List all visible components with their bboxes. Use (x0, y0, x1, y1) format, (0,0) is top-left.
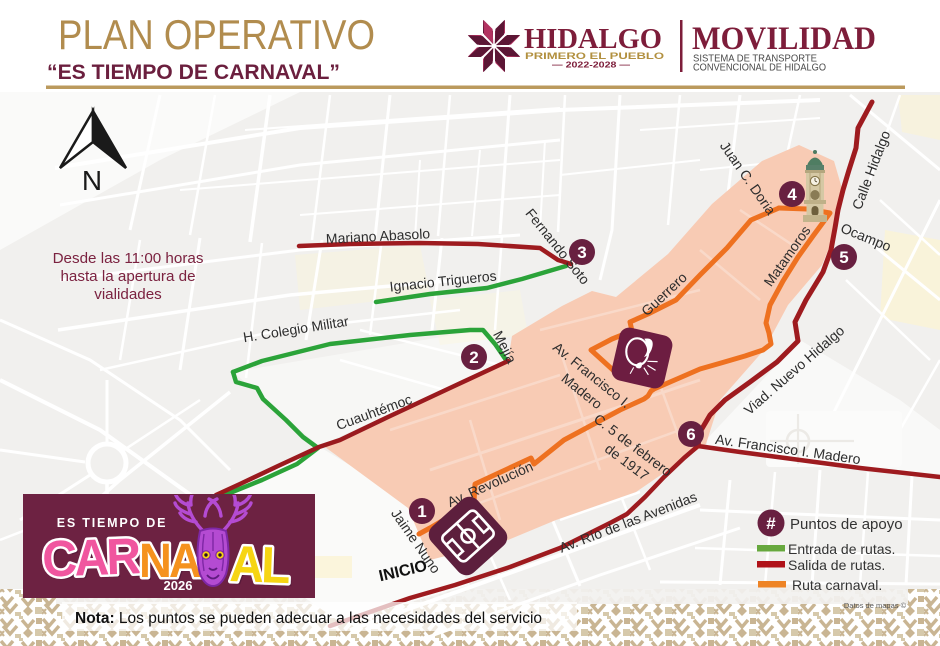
svg-text:Desde las 11:00 horas: Desde las 11:00 horas (53, 250, 204, 267)
svg-text:2026: 2026 (164, 578, 193, 593)
svg-text:Nota: Los puntos se pueden ade: Nota: Los puntos se pueden adecuar a las… (75, 610, 542, 627)
svg-text:Salida de rutas.: Salida de rutas. (788, 557, 885, 573)
svg-text:AL: AL (229, 535, 291, 594)
svg-text:5: 5 (839, 248, 848, 267)
svg-text:6: 6 (686, 425, 695, 444)
svg-text:4: 4 (787, 185, 797, 204)
svg-text:— 2022-2028 —: — 2022-2028 — (552, 61, 630, 70)
svg-text:vialidades: vialidades (94, 286, 162, 303)
svg-text:#: # (766, 514, 776, 533)
svg-text:Entrada de rutas.: Entrada de rutas. (788, 541, 895, 557)
svg-text:Datos de mapas ©: Datos de mapas © (844, 601, 907, 610)
svg-text:“ES TIEMPO DE CARNAVAL”: “ES TIEMPO DE CARNAVAL” (47, 61, 340, 84)
svg-text:3: 3 (577, 243, 586, 262)
svg-text:2: 2 (469, 348, 478, 367)
svg-text:1: 1 (417, 502, 426, 521)
svg-text:Ruta carnaval.: Ruta carnaval. (792, 577, 882, 593)
svg-text:PLAN OPERATIVO: PLAN OPERATIVO (58, 11, 375, 58)
svg-text:hasta la apertura de: hasta la apertura de (60, 268, 195, 285)
svg-text:CONVENCIONAL DE HIDALGO: CONVENCIONAL DE HIDALGO (693, 62, 826, 74)
svg-text:N: N (82, 165, 102, 196)
svg-text:Puntos de apoyo: Puntos de apoyo (790, 516, 903, 533)
svg-text:CAR: CAR (41, 527, 141, 587)
